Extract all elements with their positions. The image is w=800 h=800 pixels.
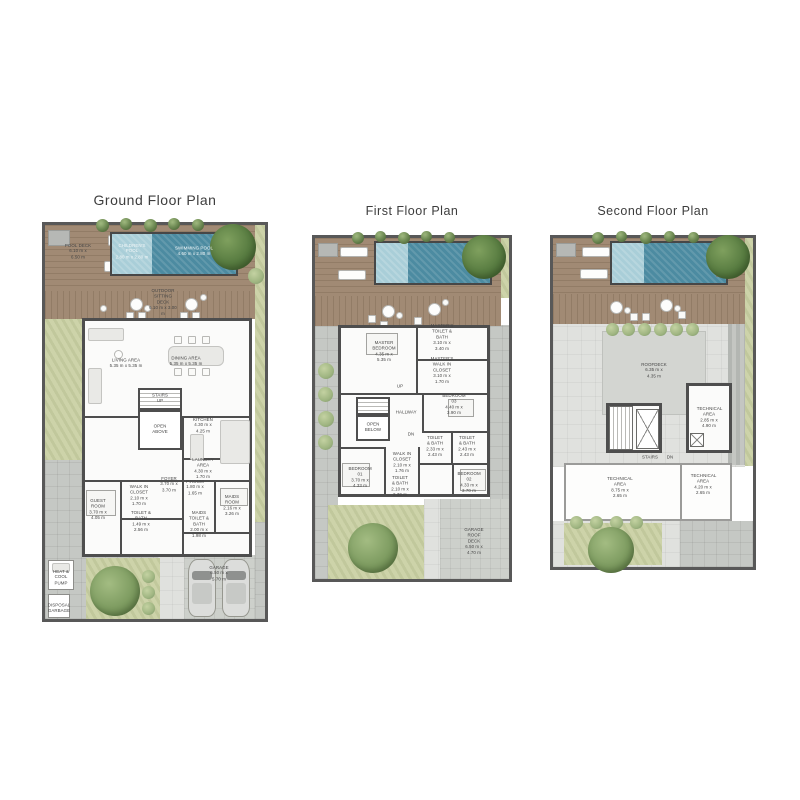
walkway (158, 555, 184, 619)
equipment-pad (318, 243, 338, 257)
first-floor-plan: MASTER BEDROOM4.35 m x 5.35 m MASTER'S T… (312, 235, 512, 582)
shrub (570, 516, 583, 529)
deck-chair (414, 317, 422, 325)
deck-chair (630, 313, 638, 321)
room-label-childrens-pool: CHILDREN'S POOL2.80 m x 2.80 m (113, 243, 151, 260)
room-label-maids-room: MAIDS ROOM2.16 m x 3.26 m (220, 495, 243, 518)
room-label-technical-area-left: TECHNICAL AREA8.75 m x 2.65 m (606, 477, 633, 500)
deck-table (610, 301, 623, 314)
lawn (745, 238, 753, 466)
room-label-foyer: FOYER3.70 m x 3.70 m (159, 476, 179, 493)
sun-lounger (582, 247, 610, 257)
large-tree (348, 523, 398, 573)
room-label-laundry-area: LAUNDRY AREA4.30 m x 1.70 m (191, 458, 215, 481)
shrub (142, 586, 155, 599)
room-label-toilet-bath-2: TOILET & BATH2.43 m x 2.43 m (457, 436, 476, 459)
tree (664, 231, 675, 242)
stairs (356, 397, 390, 415)
deck-table (660, 299, 673, 312)
room-label-stairs: STAIRS (641, 455, 659, 461)
tree (421, 231, 432, 242)
shrub (590, 516, 603, 529)
tree (688, 232, 699, 243)
room-label-stairs-up: STAIRS UP (150, 393, 170, 404)
deck-table (130, 298, 143, 311)
childrens-pool (612, 243, 644, 283)
sun-lounger (340, 247, 368, 257)
shrub (318, 363, 334, 379)
room-label-bedroom-03: BEDROOM 034.40 m x 3.90 m (440, 394, 467, 417)
tree (168, 218, 180, 230)
stairs (609, 406, 633, 450)
room-label-technical-area-right: TECHNICAL AREA4.20 m x 2.65 m (691, 474, 715, 497)
kitchen-counter (220, 420, 250, 464)
room-label-open-below: OPEN BELOW (363, 422, 383, 433)
shrub (686, 323, 699, 336)
tree (375, 231, 386, 242)
shrub (142, 602, 155, 615)
walkway (424, 499, 440, 579)
lawn (45, 318, 83, 460)
room-label-pool-deck: POOL DECK6.10 m x 6.50 m (64, 243, 91, 260)
wall (451, 433, 453, 463)
sun-lounger (580, 269, 608, 279)
wall (422, 395, 424, 433)
shrub (670, 323, 683, 336)
room-label-p-room: P.ROOM1.80 m x 1.65 m (185, 479, 205, 496)
dining-chair (188, 336, 196, 344)
room-label-walk-in-closet: WALK IN CLOSET2.10 m x 1.76 m (392, 452, 412, 475)
large-tree (90, 566, 140, 616)
second-floor-plan: ROOFDECK6.35 m x 4.35 m TECHNICAL AREA2.… (550, 235, 756, 570)
large-tree (462, 235, 506, 279)
wall (420, 463, 490, 465)
room-label-open-above: OPEN ABOVE (150, 424, 170, 435)
paving (680, 521, 753, 567)
tree (592, 232, 604, 244)
room-label-toilet-bath: TOILET & BATH1.49 m x 2.56 m (131, 511, 151, 534)
deck-chair (200, 294, 207, 301)
tree (444, 232, 455, 243)
deck-chair (368, 315, 376, 323)
ground-floor-plan: POOL DECK6.10 m x 6.50 m CHILDREN'S POOL… (42, 222, 268, 622)
room-label-maids-toilet-bath: MAIDS TOILET & BATH2.00 m x 1.98 m (187, 511, 210, 540)
tree (144, 219, 157, 232)
room-label-masters-toilet-bath: MASTER'S TOILET & BATH3.10 m x 3.40 m (428, 324, 455, 353)
outdoor-sitting-deck (315, 296, 501, 326)
equipment-box (690, 433, 704, 447)
room-label-up: UP (393, 384, 407, 390)
deck-chair (678, 311, 686, 319)
dining-chair (174, 368, 182, 376)
wall (680, 463, 682, 521)
shrub (630, 516, 643, 529)
shrub (622, 323, 635, 336)
deck-table (185, 298, 198, 311)
first-floor-title: First Floor Plan (312, 204, 512, 218)
sofa (88, 328, 124, 341)
elevator-shaft (636, 409, 659, 449)
room-label-roofdeck: ROOFDECK6.35 m x 4.35 m (640, 362, 667, 379)
tree (398, 232, 410, 244)
kitchen-island (190, 434, 204, 460)
shrub (318, 387, 333, 402)
deck-chair (442, 299, 449, 306)
wall (214, 482, 216, 532)
shrub (142, 570, 155, 583)
ground-floor-title: Ground Floor Plan (42, 192, 268, 208)
equipment-pad (556, 243, 576, 257)
large-tree (706, 235, 750, 279)
dining-chair (202, 368, 210, 376)
room-label-guest-room: GUEST ROOM3.70 m x 4.05 m (86, 499, 109, 522)
room-label-dining-area: DINING AREA5.35 m x 5.35 m (167, 356, 205, 367)
room-label-dn: DN (404, 432, 418, 438)
room-label-master-bedroom: MASTER BEDROOM4.35 m x 5.35 m (370, 341, 397, 364)
room-label-outdoor-sitting-deck: OUTDOOR SITTING DECK6.10 m x 3.00 m (148, 289, 178, 318)
room-label-heat-cool-pump: HEAT & COOL PUMP (49, 569, 72, 586)
room-label-garage-roof-deck: GARAGE ROOF DECK6.50 m x 4.70 m (462, 528, 486, 557)
tree (640, 232, 652, 244)
wall (384, 447, 386, 497)
room-label-toilet-bath-1: TOILET & BATH2.33 m x 2.43 m (425, 436, 444, 459)
tree (616, 231, 627, 242)
room-label-walk-in-closet: WALK IN CLOSET2.10 m x 1.70 m (127, 485, 150, 508)
deck-chair (396, 312, 403, 319)
room-label-bedroom-02: BEDROOM 024.33 m x 3.70 m (457, 472, 480, 495)
room-label-kitchen: KITCHEN4.30 m x 4.25 m (191, 417, 215, 434)
sofa (88, 368, 102, 404)
wall (452, 465, 454, 497)
tree (96, 219, 109, 232)
wall (182, 482, 184, 557)
tree (352, 232, 364, 244)
shrub (654, 323, 667, 336)
room-label-bedroom-01: BEDROOM 013.70 m x 4.33 m (348, 467, 371, 490)
room-label-toilet-bath-3: TOILET & BATH2.10 m x 2.30 m (390, 476, 409, 499)
room-label-living-area: LIVING AREA5.35 m x 5.35 m (107, 358, 145, 369)
room-label-masters-walk-in-closet: MASTER'S WALK IN CLOSET3.10 m x 1.70 m (428, 357, 455, 386)
room-label-technical-area-upper: TECHNICAL AREA2.85 m x 4.90 m (697, 407, 721, 430)
large-tree (588, 527, 634, 573)
shrub (318, 435, 333, 450)
large-tree (210, 224, 256, 270)
shrub (248, 268, 264, 284)
room-label-hallway: HALLWAY (396, 410, 416, 416)
wall (418, 447, 420, 497)
shrub (318, 411, 334, 427)
dining-chair (174, 336, 182, 344)
second-floor-title: Second Floor Plan (550, 204, 756, 218)
tree (120, 218, 132, 230)
tree (192, 219, 204, 231)
room-label-garage: GARAGE6.50 m x 5.70 m (207, 565, 230, 582)
deck-chair (100, 305, 107, 312)
room-label-swimming-pool: SWIMMING POOL4.60 m x 2.80 m (175, 246, 213, 257)
wall (422, 431, 490, 433)
wall (182, 418, 184, 480)
deck-table (428, 303, 441, 316)
deck-chair (642, 313, 650, 321)
room-label-dn: DN (665, 455, 676, 461)
room-label-disposal-garbage: DISPOSAL GARBAGE (47, 603, 70, 614)
sun-lounger (338, 270, 366, 280)
shrub (638, 323, 651, 336)
dining-chair (202, 336, 210, 344)
dining-chair (188, 368, 196, 376)
paving (255, 522, 265, 619)
wall (338, 447, 384, 449)
childrens-pool (376, 243, 408, 283)
deck-table (382, 305, 395, 318)
shrub (606, 323, 619, 336)
floor-plans-sheet: Ground Floor Plan First Floor Plan Secon… (0, 0, 800, 800)
